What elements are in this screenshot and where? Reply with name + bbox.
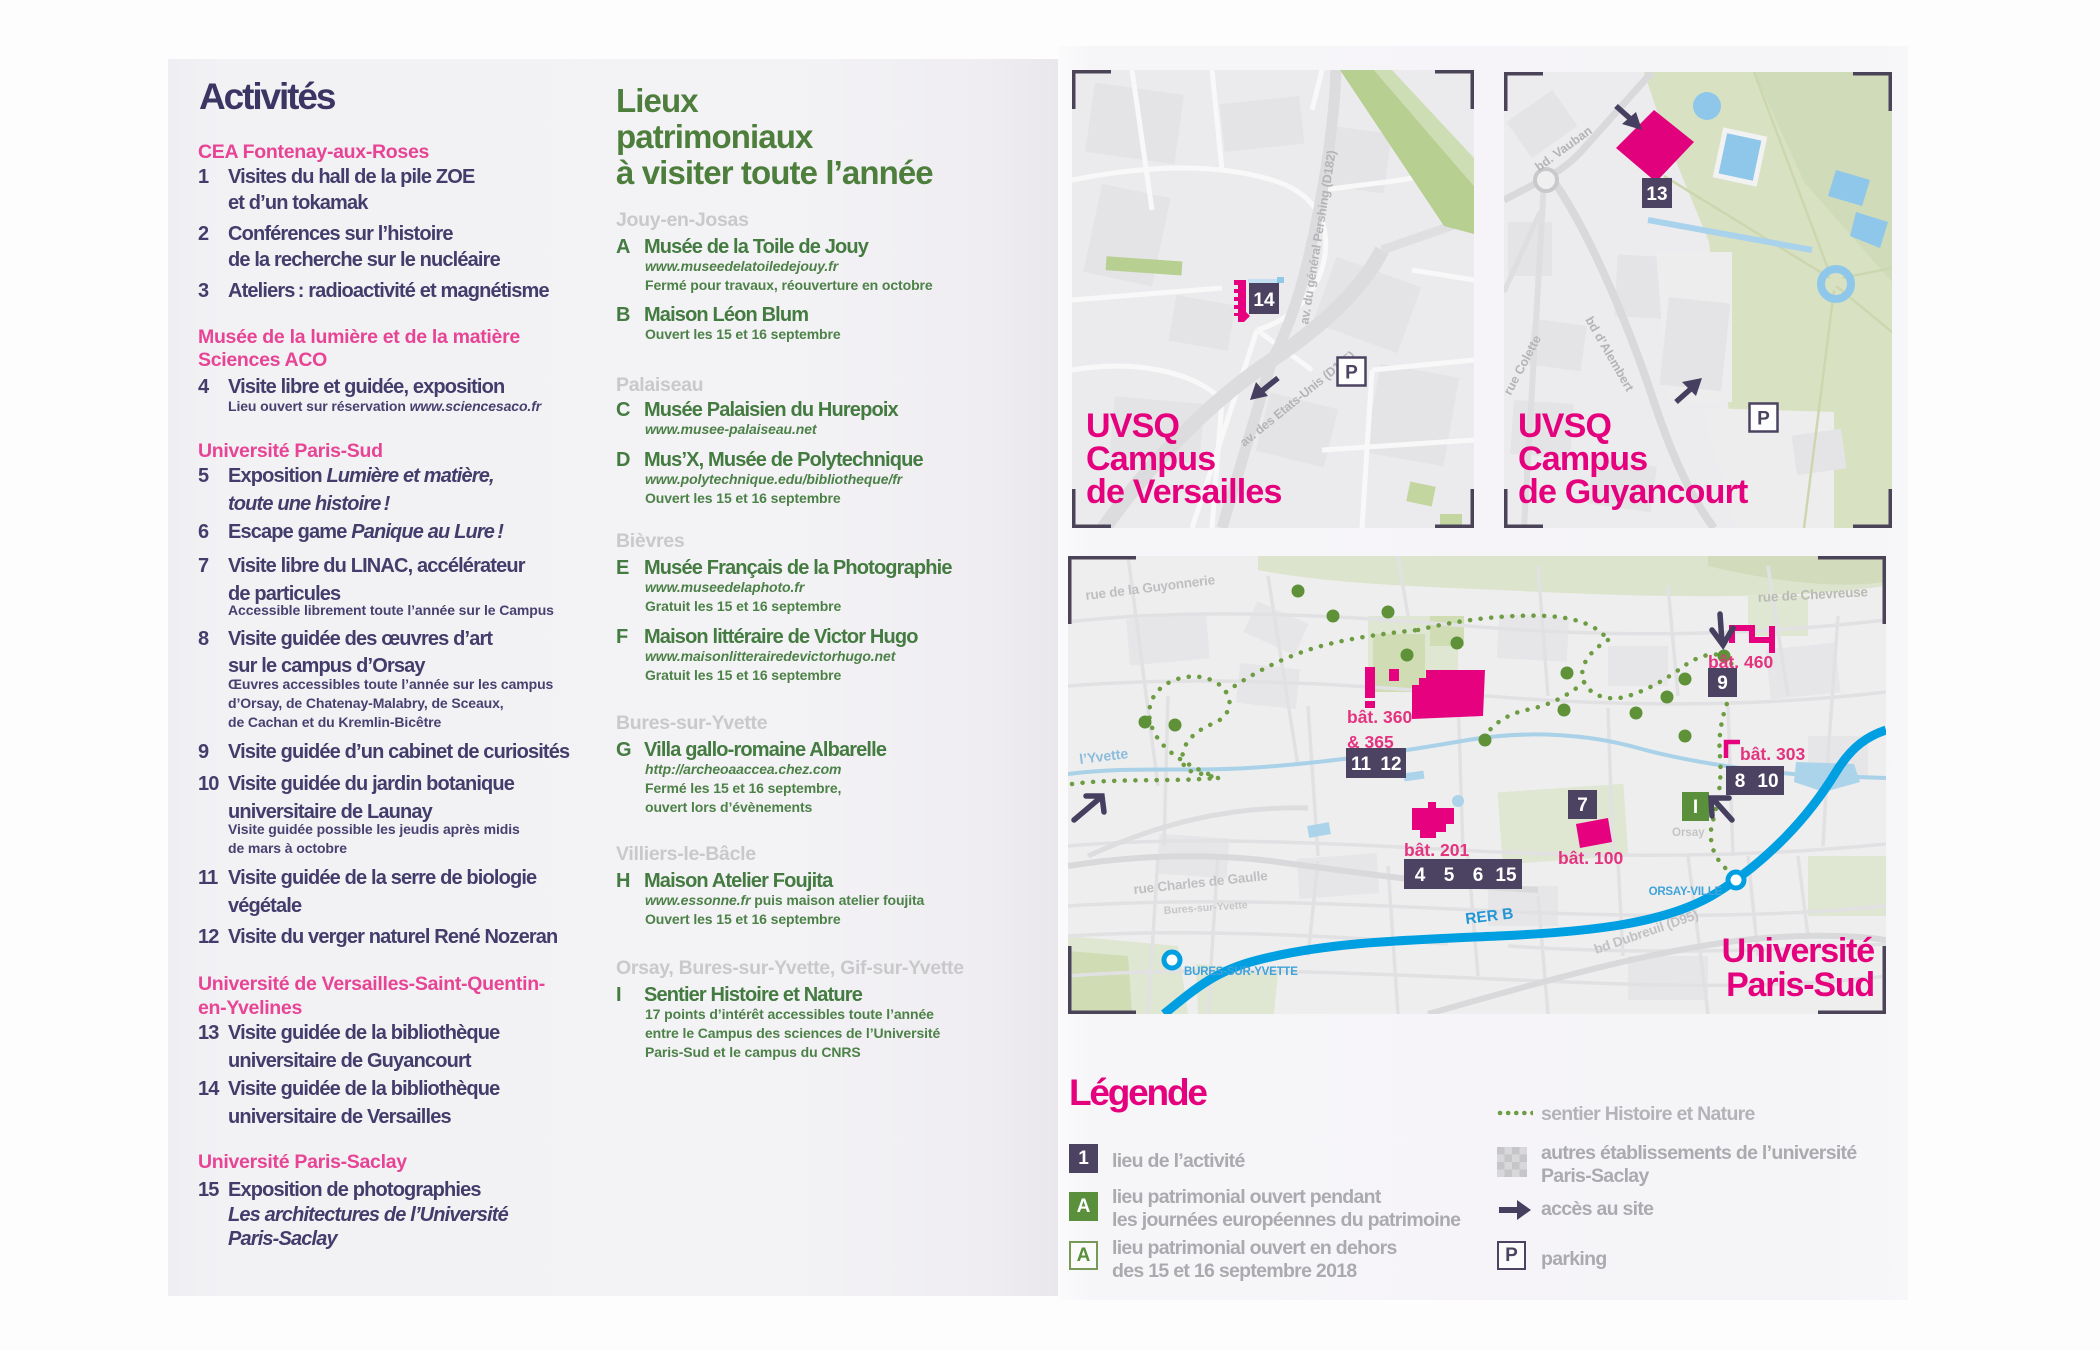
svg-text:8: 8 [1735, 771, 1746, 792]
svg-text:4: 4 [1415, 865, 1426, 886]
svg-text:bât. 360: bât. 360 [1347, 707, 1412, 727]
svg-text:P: P [1345, 363, 1358, 384]
svg-text:P: P [1757, 409, 1770, 430]
svg-text:14: 14 [1253, 290, 1275, 311]
svg-text:10: 10 [1757, 771, 1778, 792]
svg-text:I: I [1693, 797, 1698, 818]
svg-text:9: 9 [1717, 673, 1728, 694]
svg-text:13: 13 [1646, 184, 1667, 205]
svg-text:11: 11 [1351, 754, 1372, 775]
svg-text:Orsay: Orsay [1672, 827, 1705, 839]
svg-text:BURES-SUR-YVETTE: BURES-SUR-YVETTE [1184, 966, 1298, 978]
svg-text:Paris-Sud: Paris-Sud [1726, 966, 1874, 1004]
svg-text:7: 7 [1577, 795, 1588, 816]
svg-text:ORSAY-VILLE: ORSAY-VILLE [1649, 886, 1723, 898]
svg-text:Université: Université [1722, 932, 1875, 970]
svg-text:12: 12 [1380, 754, 1401, 775]
svg-text:5: 5 [1444, 865, 1455, 886]
svg-text:bât. 100: bât. 100 [1558, 848, 1623, 868]
svg-text:bât. 201: bât. 201 [1404, 840, 1469, 860]
svg-text:6: 6 [1473, 865, 1484, 886]
svg-text:bât. 303: bât. 303 [1740, 744, 1805, 764]
svg-text:15: 15 [1495, 865, 1517, 886]
